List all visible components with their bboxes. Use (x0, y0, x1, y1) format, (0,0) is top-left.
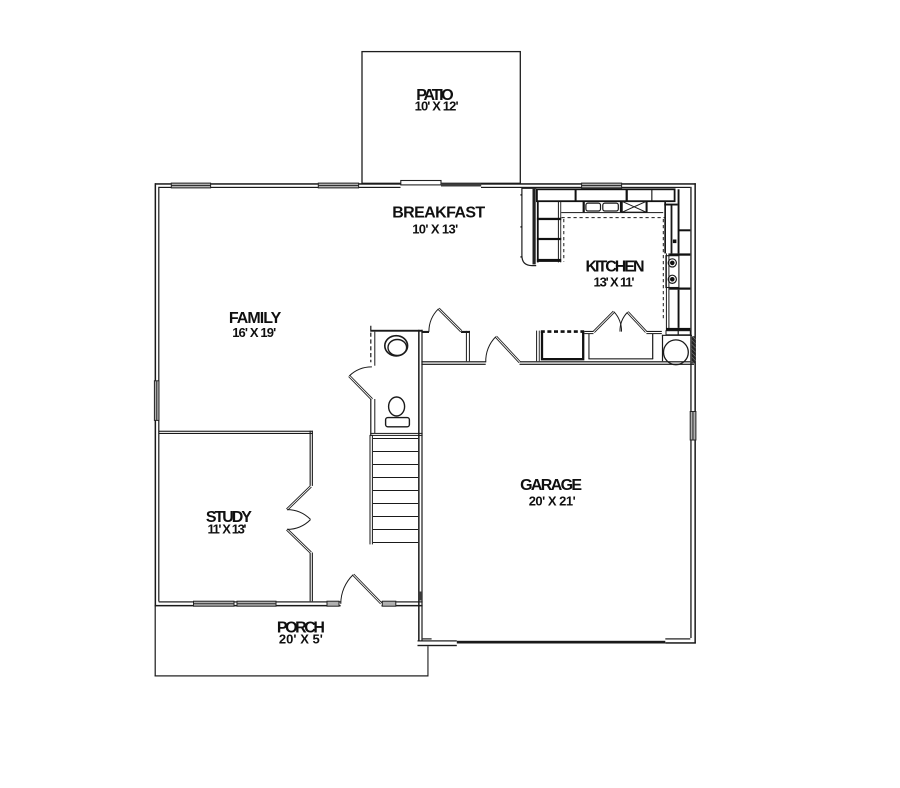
svg-text:10' X 12': 10' X 12' (415, 99, 459, 114)
svg-text:11' X 13': 11' X 13' (208, 522, 247, 537)
svg-text:10' X 13': 10' X 13' (412, 222, 458, 237)
svg-text:KITCHEN: KITCHEN (586, 259, 645, 276)
svg-text:20' X 21': 20' X 21' (529, 494, 576, 509)
svg-text:13' X 11': 13' X 11' (594, 275, 635, 290)
svg-text:BREAKFAST: BREAKFAST (392, 205, 485, 222)
svg-text:20' X 5': 20' X 5' (279, 632, 323, 647)
svg-text:GARAGE: GARAGE (520, 477, 582, 494)
svg-text:16' X 19': 16' X 19' (232, 325, 276, 340)
